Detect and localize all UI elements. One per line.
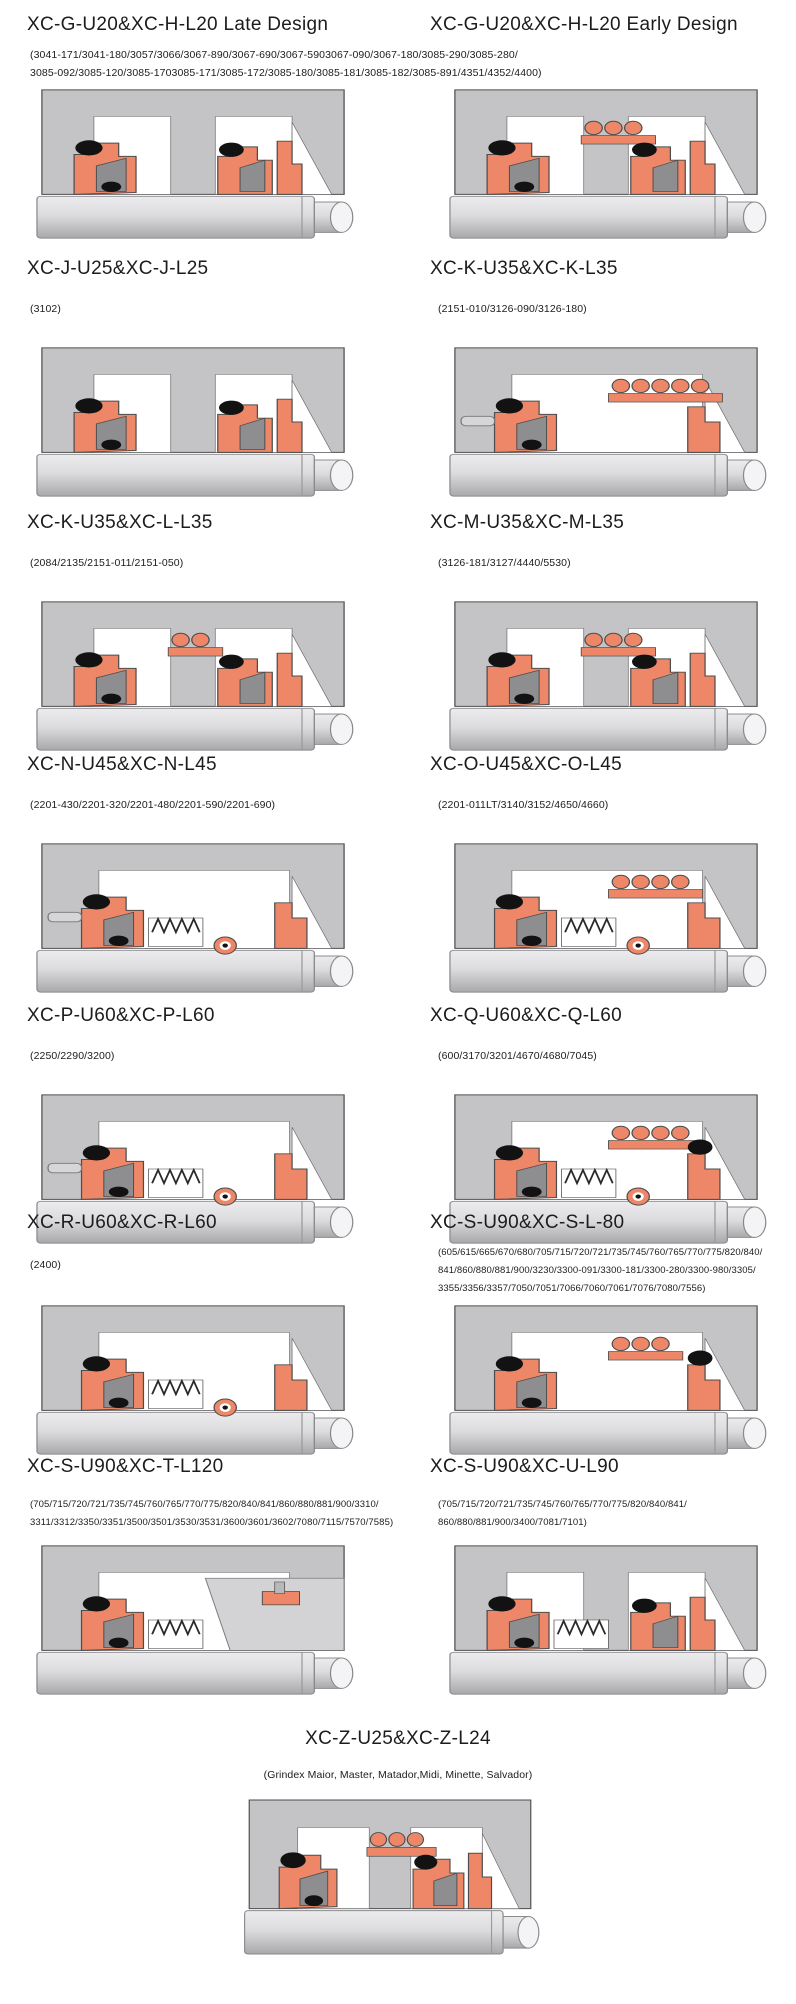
seal-title: XC-P-U60&XC-P-L60 [27, 1005, 215, 1027]
model-numbers: (705/715/720/721/735/745/760/765/770/775… [438, 1496, 788, 1532]
model-numbers: (605/615/665/670/680/705/715/720/721/735… [438, 1244, 788, 1298]
seal-cross-section-diagram [32, 1304, 354, 1456]
seal-title: XC-O-U45&XC-O-L45 [430, 754, 622, 776]
model-numbers: (2201-011LT/3140/3152/4650/4660) [438, 796, 608, 814]
seal-title: XC-Q-U60&XC-Q-L60 [430, 1005, 622, 1027]
model-numbers: (3102) [30, 300, 61, 318]
model-numbers: (2201-430/2201-320/2201-480/2201-590/220… [30, 796, 275, 814]
seal-cross-section-diagram [32, 88, 354, 240]
seal-title: XC-S-U90&XC-T-L120 [27, 1456, 224, 1478]
seal-title: XC-S-U90&XC-U-L90 [430, 1456, 619, 1478]
seal-cross-section-diagram [240, 1798, 540, 1956]
seal-cross-section-diagram [445, 600, 767, 752]
model-numbers: (3041-171/3041-180/3057/3066/3067-890/30… [30, 46, 590, 82]
seal-title: XC-G-U20&XC-H-L20 Early Design [430, 14, 738, 36]
seal-cross-section-diagram [445, 1544, 767, 1696]
seal-title: XC-S-U90&XC-S-L-80 [430, 1212, 624, 1234]
seal-cross-section-diagram [445, 842, 767, 994]
seal-title: XC-K-U35&XC-L-L35 [27, 512, 213, 534]
model-numbers: (2151-010/3126-090/3126-180) [438, 300, 587, 318]
seal-title: XC-G-U20&XC-H-L20 Late Design [27, 14, 328, 36]
model-numbers: (3126-181/3127/4440/5530) [438, 554, 571, 572]
model-numbers: (2250/2290/3200) [30, 1047, 115, 1065]
model-numbers: (2400) [30, 1256, 61, 1274]
seal-title: XC-Z-U25&XC-Z-L24 [0, 1728, 796, 1750]
seal-title: XC-J-U25&XC-J-L25 [27, 258, 208, 280]
seal-cross-section-diagram [32, 842, 354, 994]
model-numbers: (600/3170/3201/4670/4680/7045) [438, 1047, 597, 1065]
seal-cross-section-diagram [445, 346, 767, 498]
seal-title: XC-N-U45&XC-N-L45 [27, 754, 217, 776]
seal-cross-section-diagram [32, 600, 354, 752]
seal-cross-section-diagram [445, 88, 767, 240]
seal-title: XC-R-U60&XC-R-L60 [27, 1212, 217, 1234]
seal-title: XC-M-U35&XC-M-L35 [430, 512, 624, 534]
seal-cross-section-diagram [445, 1304, 767, 1456]
seal-cross-section-diagram [32, 346, 354, 498]
catalog-page: XC-G-U20&XC-H-L20 Late Design XC-G-U20&X… [0, 0, 796, 2004]
model-numbers: (705/715/720/721/735/745/760/765/770/775… [30, 1496, 410, 1532]
model-numbers: (2084/2135/2151-011/2151-050) [30, 554, 183, 572]
seal-cross-section-diagram [32, 1544, 354, 1696]
model-numbers: (Grindex Maior, Master, Matador,Midi, Mi… [0, 1766, 796, 1784]
seal-title: XC-K-U35&XC-K-L35 [430, 258, 618, 280]
